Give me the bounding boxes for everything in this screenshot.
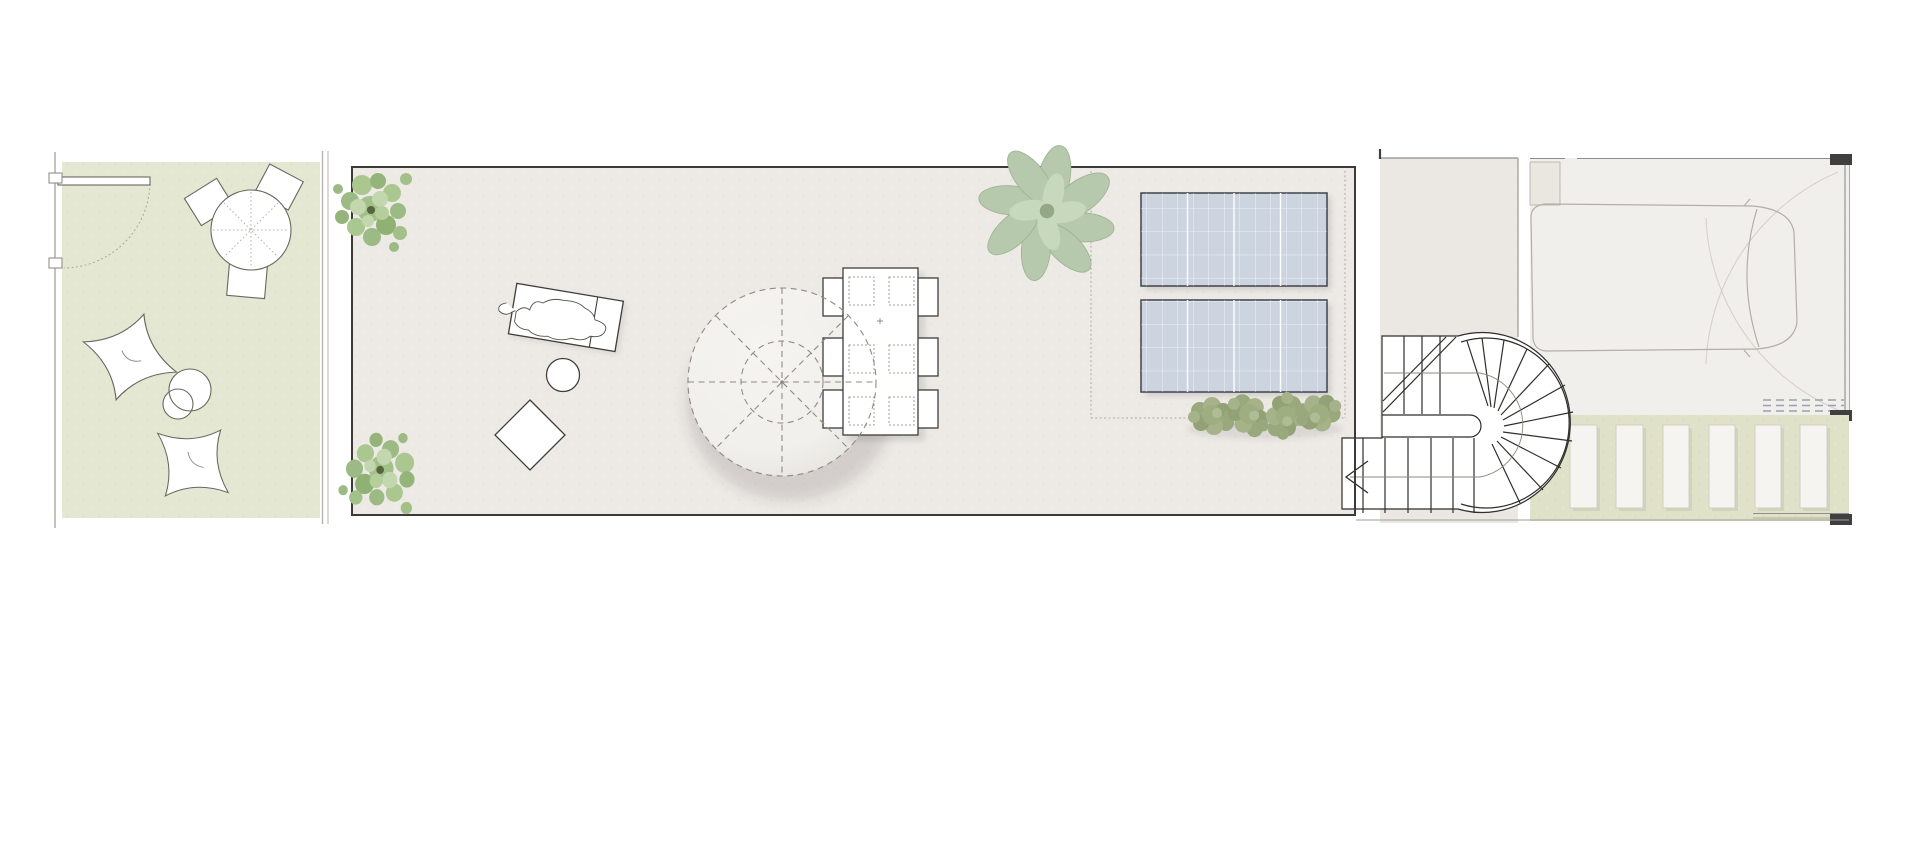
left-patio	[49, 151, 328, 528]
main-terrace	[333, 131, 1355, 515]
bistro-table	[211, 190, 291, 270]
floor-plan-canvas	[0, 0, 1920, 850]
wall-tick-top	[49, 173, 62, 183]
floor-plan-drawing	[0, 0, 1920, 850]
door-leaf	[58, 177, 150, 185]
dining-table	[843, 268, 918, 435]
garage	[1530, 154, 1852, 421]
dining-set	[823, 268, 938, 441]
wall-tick-bottom	[49, 258, 62, 268]
side-table	[547, 359, 580, 392]
garage-corner-block	[1530, 162, 1560, 205]
wall-gap	[1358, 150, 1379, 436]
wall-pier	[1830, 154, 1852, 165]
